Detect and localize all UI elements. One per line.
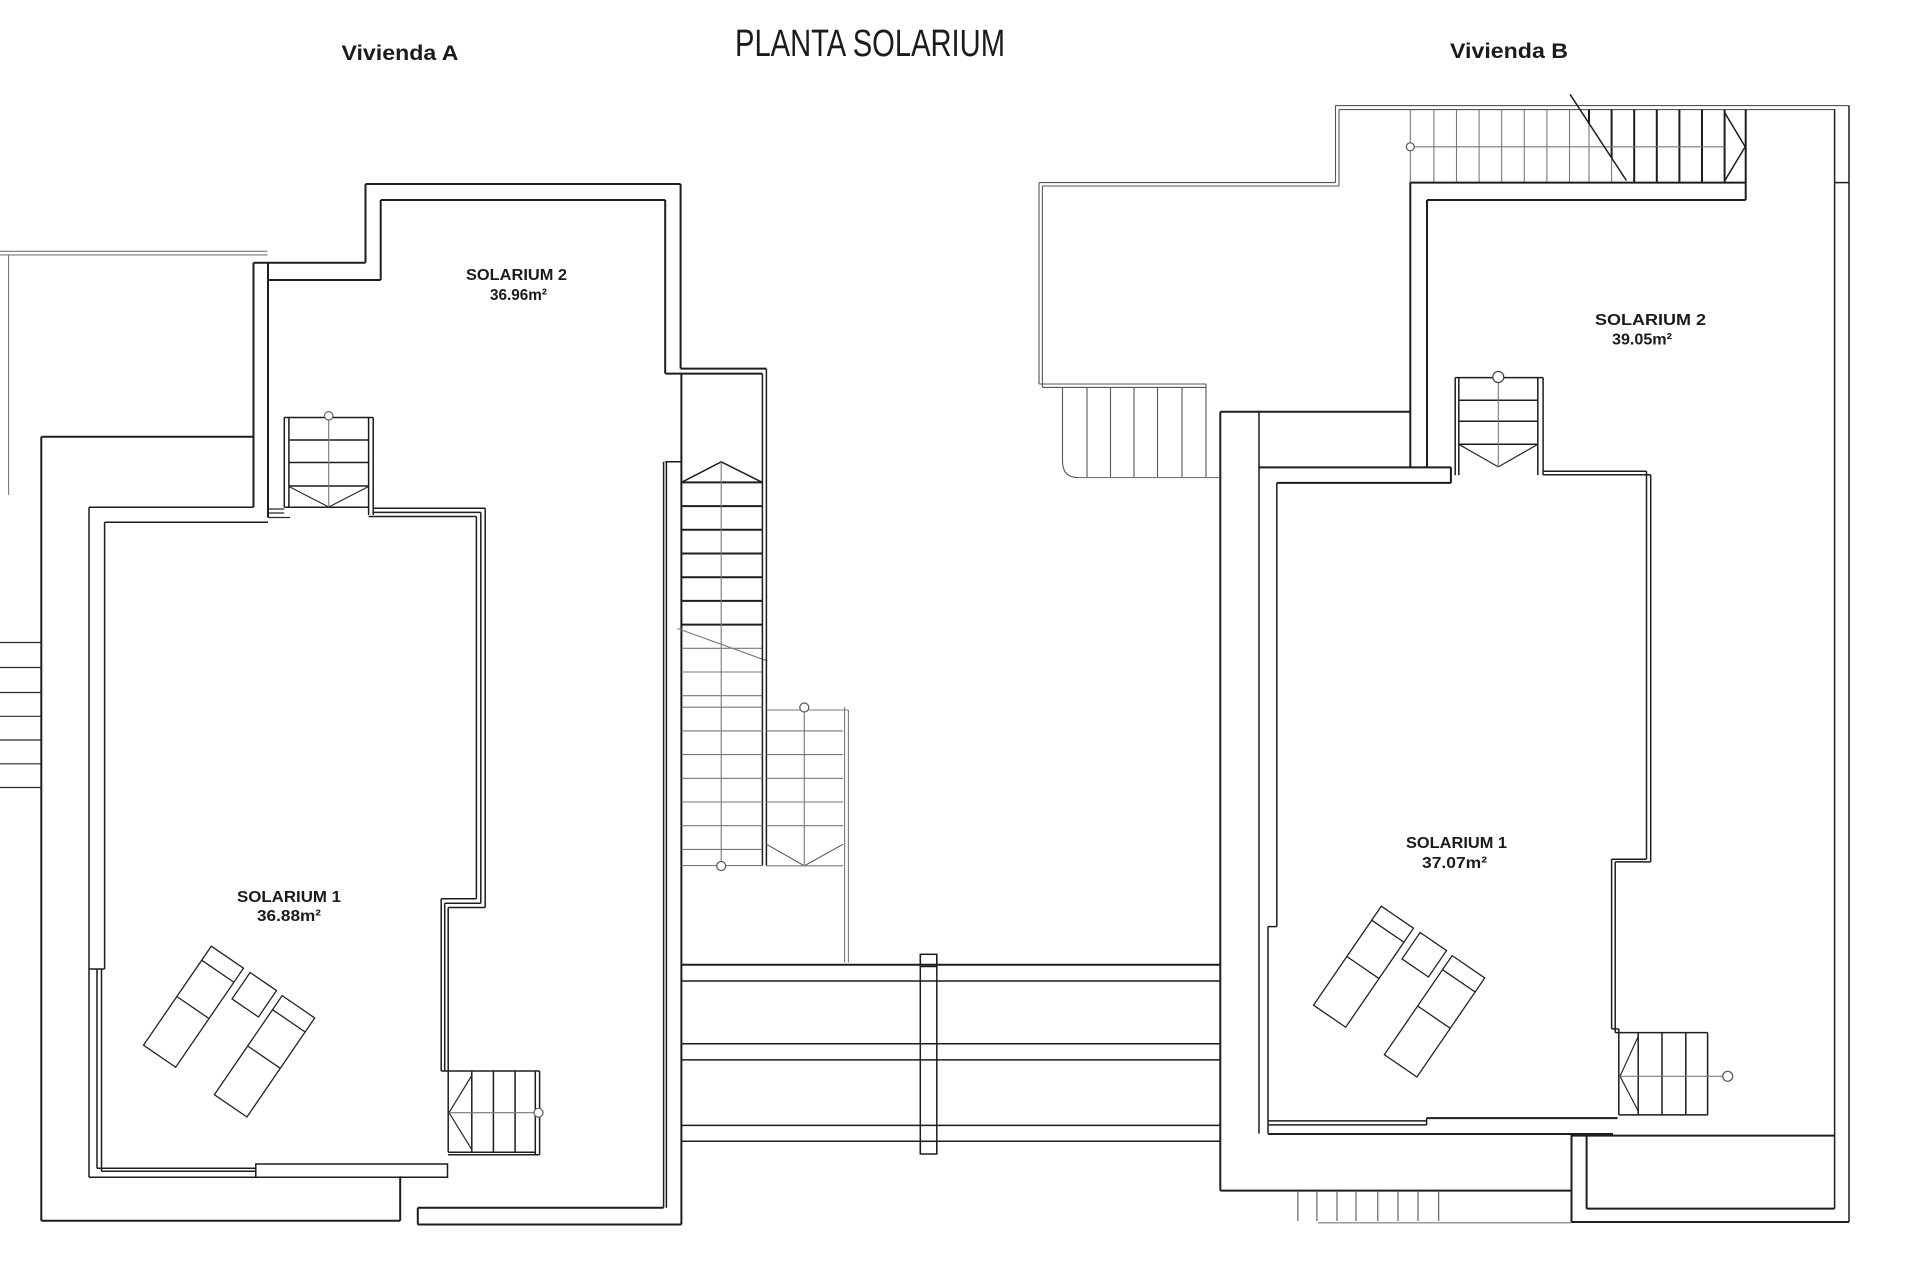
svg-text:Vivienda A: Vivienda A	[342, 42, 459, 65]
svg-text:39.05m²: 39.05m²	[1612, 332, 1672, 349]
svg-text:SOLARIUM 2: SOLARIUM 2	[466, 267, 567, 284]
svg-text:PLANTA SOLARIUM: PLANTA SOLARIUM	[735, 23, 1005, 65]
svg-text:SOLARIUM 2: SOLARIUM 2	[1595, 312, 1706, 329]
svg-text:36.88m²: 36.88m²	[257, 908, 321, 925]
svg-text:SOLARIUM 1: SOLARIUM 1	[1406, 835, 1507, 852]
svg-text:SOLARIUM 1: SOLARIUM 1	[237, 889, 341, 906]
svg-text:37.07m²: 37.07m²	[1422, 855, 1487, 872]
svg-text:Vivienda B: Vivienda B	[1450, 40, 1568, 63]
svg-text:36.96m²: 36.96m²	[490, 287, 547, 304]
